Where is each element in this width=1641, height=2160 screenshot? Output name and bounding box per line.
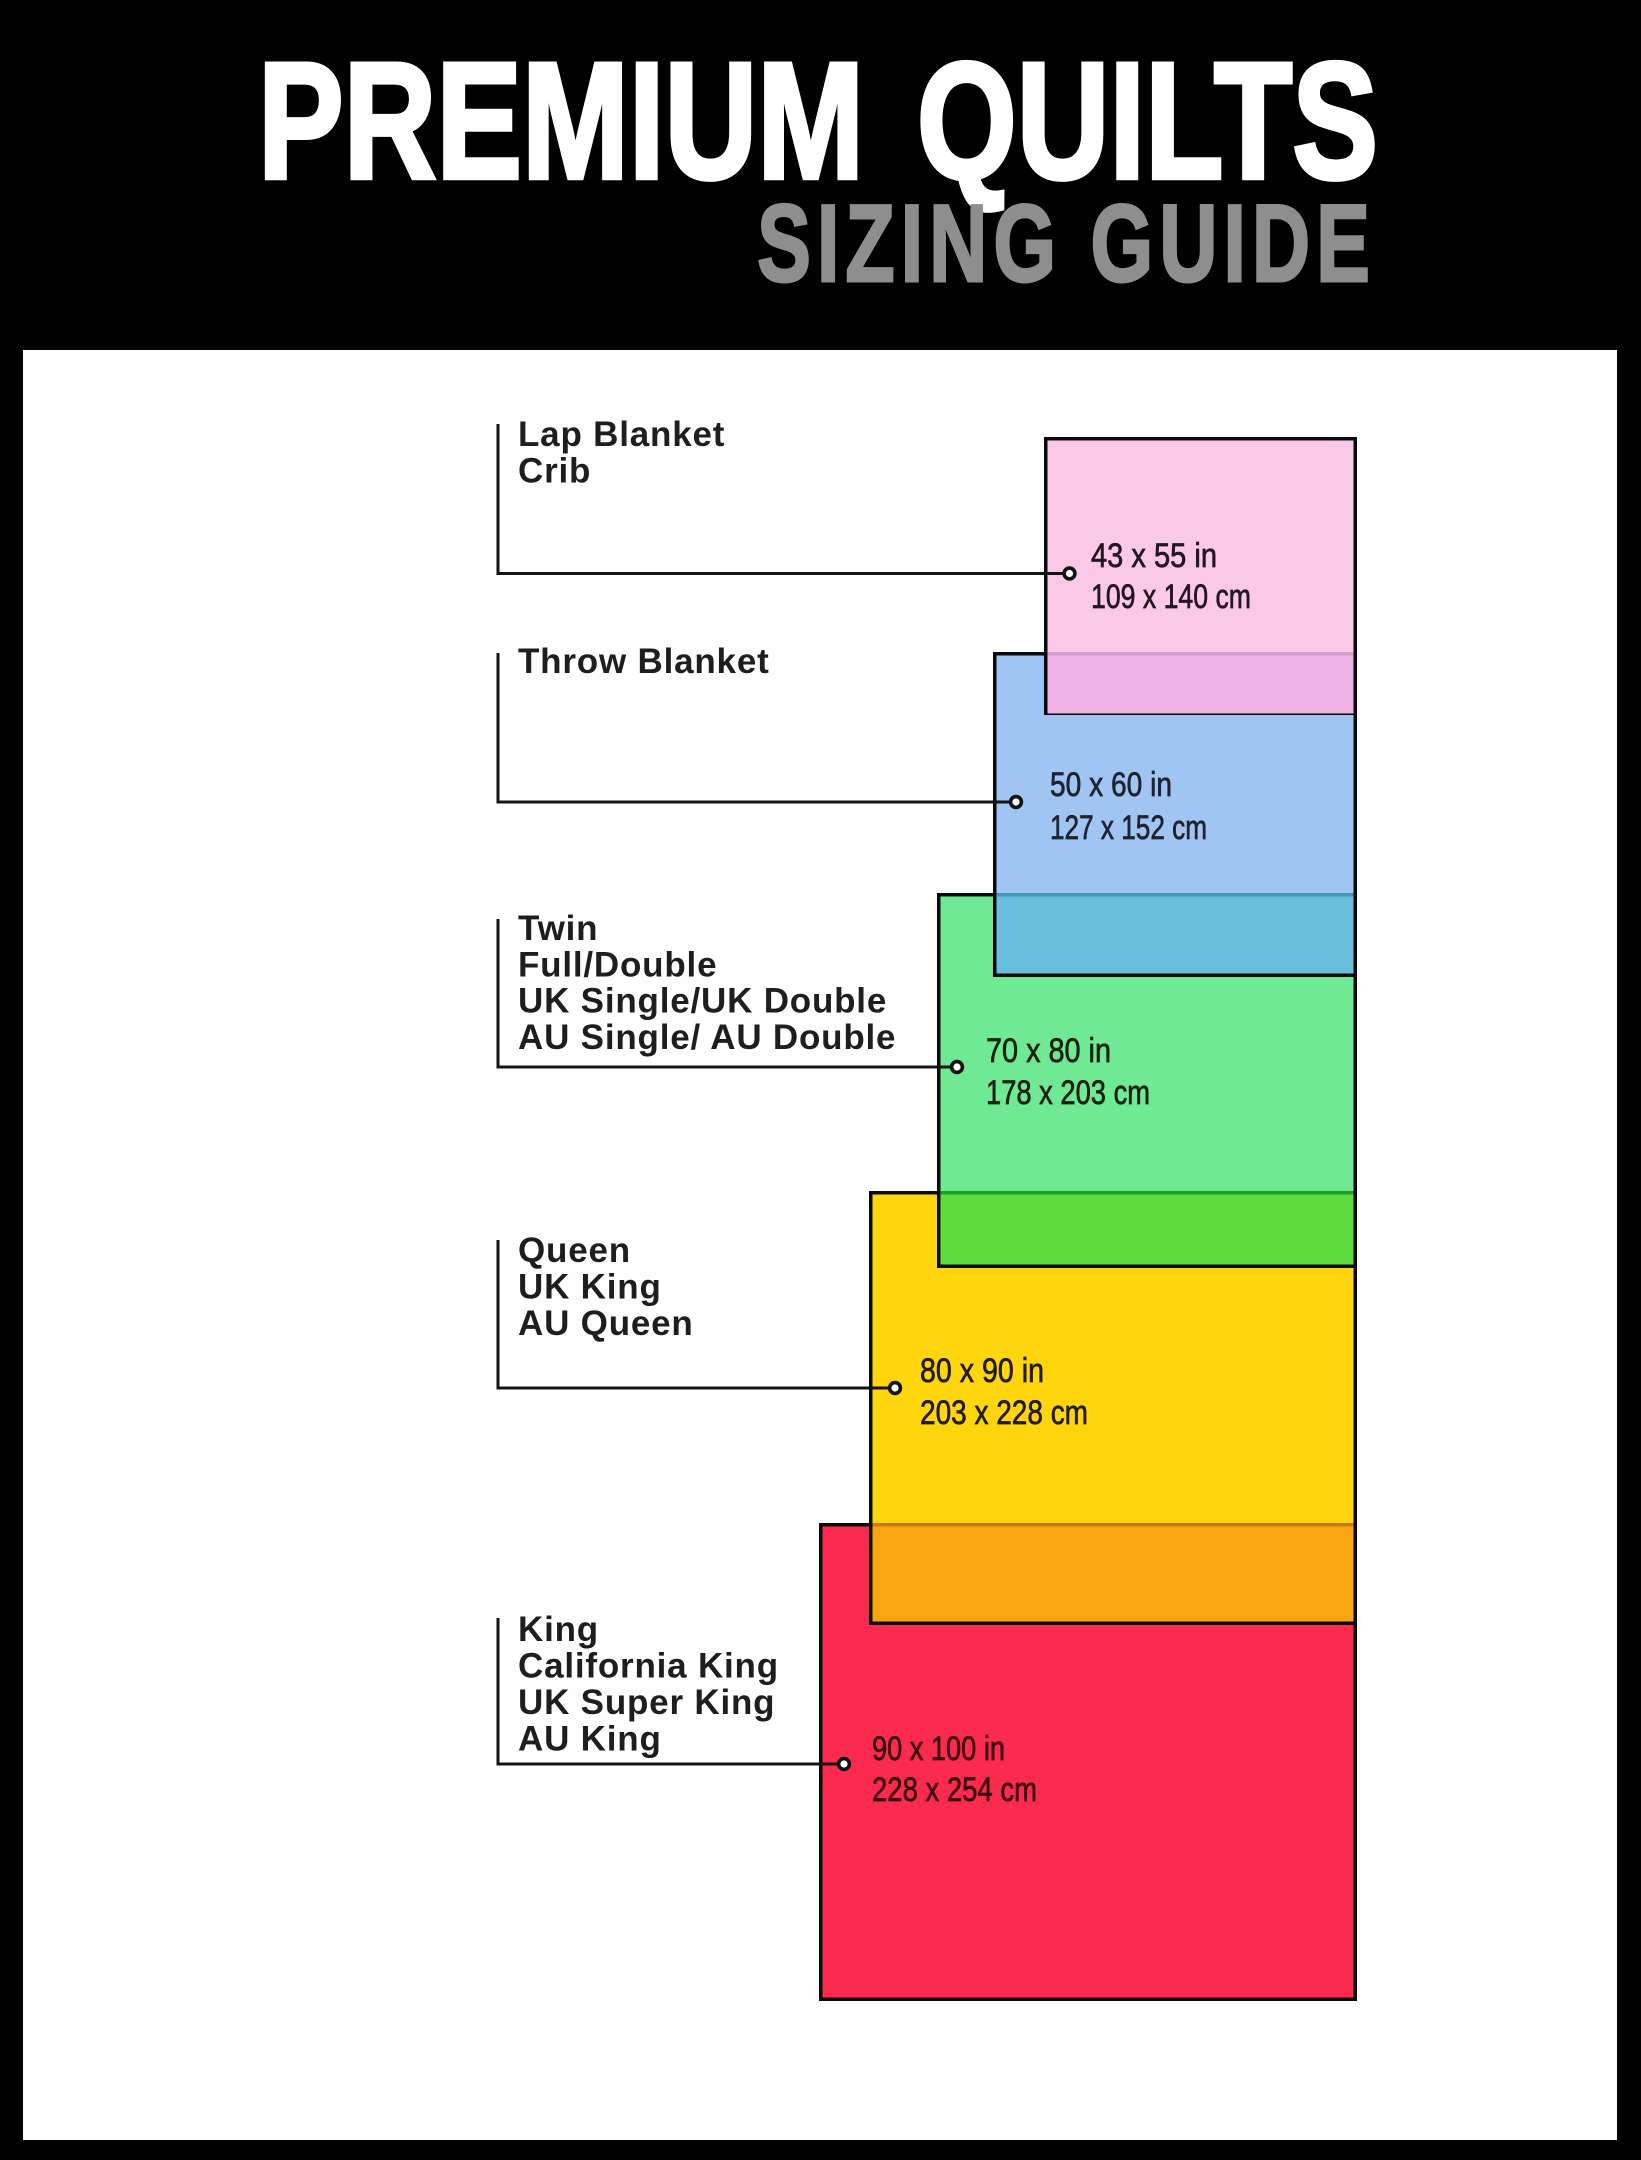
svg-text:UK King: UK King xyxy=(518,1268,662,1307)
svg-text:Throw Blanket: Throw Blanket xyxy=(518,642,770,681)
svg-text:50 x 60 in: 50 x 60 in xyxy=(1050,766,1172,804)
svg-text:178 x 203 cm: 178 x 203 cm xyxy=(986,1074,1150,1112)
svg-text:Twin: Twin xyxy=(518,909,598,948)
svg-text:AU Queen: AU Queen xyxy=(518,1304,694,1343)
svg-text:AU Single/ AU Double: AU Single/ AU Double xyxy=(518,1018,896,1057)
svg-text:228 x 254 cm: 228 x 254 cm xyxy=(872,1771,1037,1809)
svg-text:Crib: Crib xyxy=(518,452,591,491)
svg-text:UK Super King: UK Super King xyxy=(518,1683,775,1722)
svg-text:127 x 152 cm: 127 x 152 cm xyxy=(1050,809,1207,847)
svg-text:SIZING GUIDE: SIZING GUIDE xyxy=(757,183,1376,305)
svg-text:Lap Blanket: Lap Blanket xyxy=(518,415,725,454)
svg-text:80 x 90 in: 80 x 90 in xyxy=(920,1352,1044,1390)
svg-text:109 x 140 cm: 109 x 140 cm xyxy=(1091,578,1251,616)
svg-text:Queen: Queen xyxy=(518,1231,631,1270)
svg-text:UK Single/UK Double: UK Single/UK Double xyxy=(518,982,887,1021)
svg-text:70 x 80 in: 70 x 80 in xyxy=(986,1032,1111,1070)
svg-text:Full/Double: Full/Double xyxy=(518,946,717,985)
svg-text:King: King xyxy=(518,1610,599,1649)
svg-text:90 x 100 in: 90 x 100 in xyxy=(872,1730,1005,1768)
svg-text:203 x 228 cm: 203 x 228 cm xyxy=(920,1394,1088,1432)
svg-text:AU King: AU King xyxy=(518,1720,662,1759)
svg-text:California King: California King xyxy=(518,1647,779,1686)
svg-text:43 x 55 in: 43 x 55 in xyxy=(1091,537,1217,575)
